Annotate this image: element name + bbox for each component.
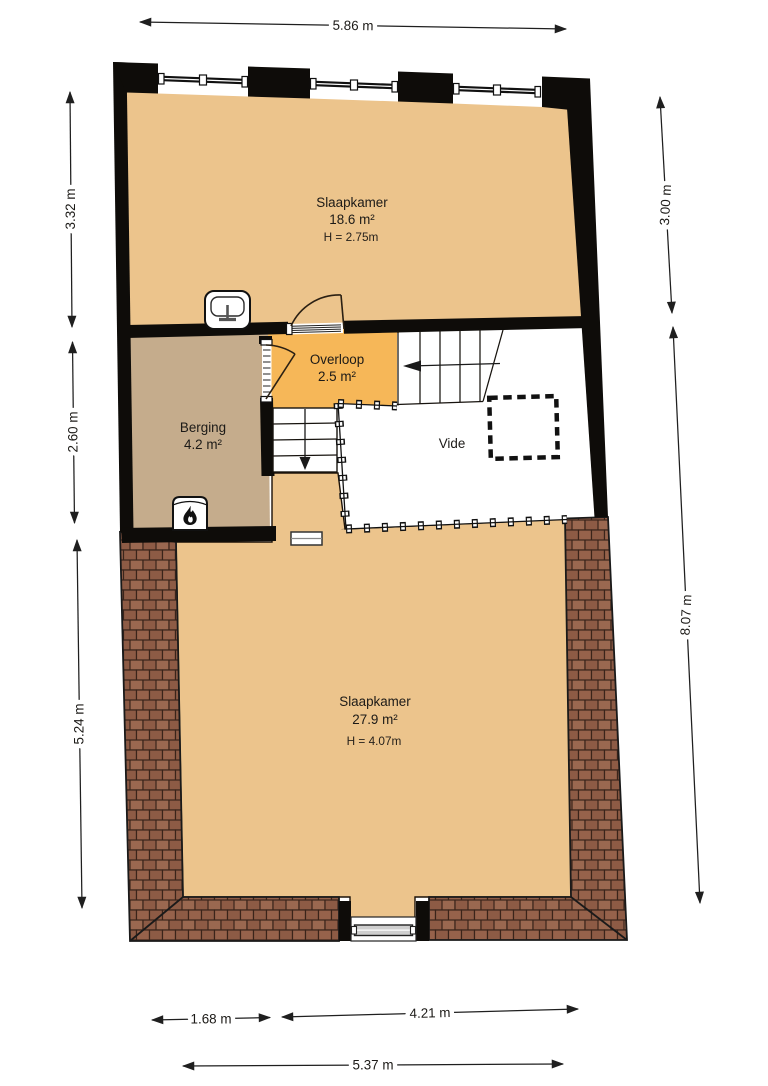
wall-pier-top-3 xyxy=(398,72,453,104)
window-1 xyxy=(158,64,248,97)
dim-bottom-left: 1.68 m xyxy=(152,1012,270,1027)
dim-bottom-right-label: 4.21 m xyxy=(409,1005,450,1021)
dim-right-lower: 8.07 m xyxy=(673,327,700,903)
wall-stub-door1 xyxy=(344,321,356,334)
dim-left-upper-label: 3.32 m xyxy=(63,189,78,230)
boiler-icon xyxy=(173,497,207,530)
dim-bottom-right: 4.21 m xyxy=(282,1005,578,1021)
dim-right-upper-label: 3.00 m xyxy=(657,184,674,226)
room-void-name: Vide xyxy=(439,436,466,451)
sink-icon xyxy=(205,291,250,329)
dim-right-lower-label: 8.07 m xyxy=(678,594,695,636)
room-bedroom1-height: H = 2.75m xyxy=(324,230,379,244)
dormer-jamb-left xyxy=(339,901,351,941)
dim-left-middle: 2.60 m xyxy=(66,342,81,523)
room-bedroom1-name: Slaapkamer xyxy=(316,195,388,210)
dim-top: 5.86 m xyxy=(140,18,566,34)
dim-top-label: 5.86 m xyxy=(332,18,373,34)
room-bedroom2-name: Slaapkamer xyxy=(339,694,411,709)
radiator xyxy=(291,532,322,545)
room-landing-name: Overloop xyxy=(310,352,364,367)
dim-bottom-left-label: 1.68 m xyxy=(191,1012,232,1027)
window-3 xyxy=(453,74,542,108)
room-storage-area: 4.2 m² xyxy=(184,437,222,452)
dim-right-upper: 3.00 m xyxy=(657,97,674,313)
room-storage-name: Berging xyxy=(180,420,226,435)
dim-bottom-total: 5.37 m xyxy=(183,1058,563,1073)
room-bedroom1-area: 18.6 m² xyxy=(329,212,375,227)
dim-left-middle-label: 2.60 m xyxy=(66,412,81,453)
room-bedroom2-height: H = 4.07m xyxy=(347,734,402,748)
floor-plan-canvas: 5.86 m 3.32 m 2.60 m 5.24 m 3.00 m 8.07 … xyxy=(0,0,768,1086)
floor-plan: 5.86 m 3.32 m 2.60 m 5.24 m 3.00 m 8.07 … xyxy=(0,0,768,1086)
dormer-jamb-right xyxy=(416,901,429,941)
room-bedroom2-area: 27.9 m² xyxy=(352,712,398,727)
dim-bottom-total-label: 5.37 m xyxy=(353,1058,394,1073)
dormer-window xyxy=(351,917,416,941)
dim-left-lower: 5.24 m xyxy=(72,540,87,908)
room-landing-area: 2.5 m² xyxy=(318,369,356,384)
dim-left-upper: 3.32 m xyxy=(63,92,78,327)
shaft-dashed-outline xyxy=(489,396,558,459)
dim-left-lower-label: 5.24 m xyxy=(72,704,87,745)
window-2 xyxy=(310,69,398,102)
wall-pier-top-2 xyxy=(248,67,310,99)
stair-small xyxy=(273,408,337,472)
